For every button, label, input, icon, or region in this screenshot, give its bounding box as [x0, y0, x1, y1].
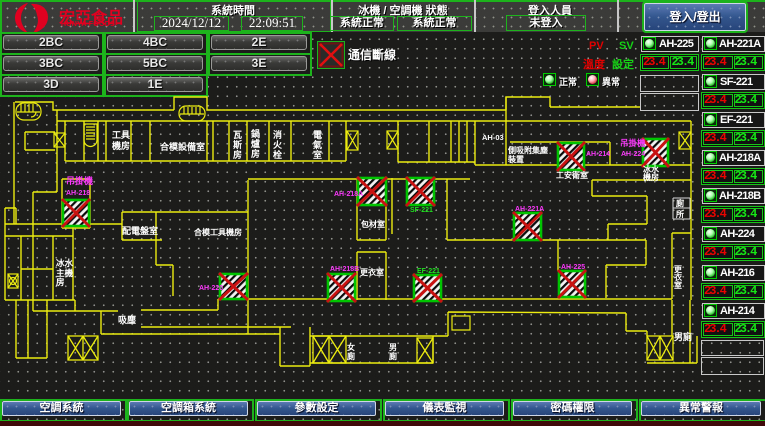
svg-text:男廁: 男廁: [674, 331, 692, 342]
svg-text:AH-224: AH-224: [621, 151, 645, 158]
svg-text:SF-221: SF-221: [410, 207, 433, 214]
svg-text:電氣室: 電氣室: [313, 130, 322, 160]
svg-text:工具: 工具: [112, 130, 130, 140]
svg-text:合模工具機房: 合模工具機房: [193, 227, 242, 237]
svg-text:AH-225: AH-225: [561, 264, 585, 271]
svg-text:AH-218B: AH-218B: [330, 266, 359, 273]
svg-text:機房: 機房: [112, 140, 130, 151]
svg-text:冰水: 冰水: [56, 258, 74, 268]
svg-text:AH-221A: AH-221A: [515, 206, 544, 213]
svg-text:更衣室: 更衣室: [674, 264, 683, 290]
svg-text:吊掛機: 吊掛機: [620, 138, 646, 148]
svg-text:合模設備室: 合模設備室: [160, 141, 205, 152]
svg-text:消火栓: 消火栓: [273, 129, 283, 160]
svg-text:AH-218: AH-218: [66, 190, 90, 197]
svg-text:女廁: 女廁: [347, 342, 355, 361]
svg-text:吊掛機: 吊掛機: [66, 175, 93, 186]
svg-text:AH-214: AH-214: [586, 151, 610, 158]
svg-text:AH-218A: AH-218A: [334, 191, 363, 198]
svg-text:廁: 廁: [676, 198, 684, 208]
svg-text:配電盤室: 配電盤室: [122, 225, 158, 236]
svg-text:男廁: 男廁: [389, 343, 397, 361]
svg-text:吸塵: 吸塵: [118, 314, 136, 325]
svg-text:AH-03: AH-03: [482, 133, 504, 142]
svg-text:瓦斯房: 瓦斯房: [233, 130, 242, 160]
svg-text:工安衛室: 工安衛室: [556, 170, 588, 180]
svg-text:機房: 機房: [643, 172, 659, 182]
svg-text:側吸附集塵: 側吸附集塵: [507, 145, 548, 155]
svg-text:房: 房: [56, 277, 65, 287]
svg-text:裝置: 裝置: [507, 154, 524, 164]
svg-text:包材室: 包材室: [360, 219, 385, 229]
svg-text:EF-221: EF-221: [417, 268, 440, 275]
svg-text:AH-220: AH-220: [199, 285, 223, 292]
svg-text:鍋爐房: 鍋爐房: [251, 128, 260, 159]
svg-text:更衣室: 更衣室: [360, 267, 384, 277]
svg-text:所: 所: [675, 209, 684, 219]
